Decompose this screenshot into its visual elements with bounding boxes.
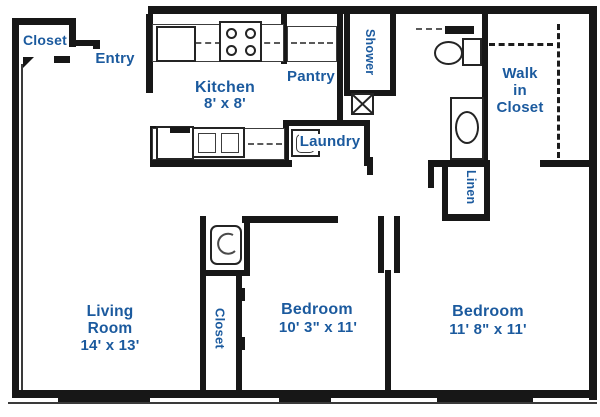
bathroom-mirror <box>445 26 474 34</box>
wall-bedroom-divider <box>385 270 391 393</box>
wall-bathroom-left <box>390 14 396 96</box>
wall-linen-left <box>442 167 448 219</box>
wall-top-outer <box>148 6 597 14</box>
wall-entry-closet-top <box>12 18 76 25</box>
bathroom-sink <box>455 111 479 144</box>
room-label-bedroom-1: Bedroom <box>276 301 358 319</box>
bedroom1-closet-door-mark-1 <box>238 288 245 301</box>
window-bedroom-1 <box>279 390 331 402</box>
vent-chase <box>351 93 374 115</box>
water-heater <box>210 225 242 265</box>
wall-entry-closet-bottom-stub <box>54 56 70 63</box>
refrigerator <box>156 26 196 62</box>
room-label-linen: Linen <box>464 170 478 204</box>
room-dims-bedroom-1: 10' 3" x 11' <box>262 320 374 337</box>
room-dims-bedroom-2: 11' 8" x 11' <box>432 322 544 339</box>
room-dims-kitchen: 8' x 8' <box>178 96 272 113</box>
stove-burner <box>245 28 256 39</box>
wall-utility-right <box>244 216 250 273</box>
wall-pantry-right <box>337 14 343 122</box>
bedroom1-closet-door-mark-2 <box>238 337 245 350</box>
towel-bar <box>416 28 442 30</box>
wall-linen-bottom <box>442 214 490 221</box>
room-label-entry: Entry <box>90 51 140 68</box>
sink-basin-right <box>221 133 239 153</box>
walkin-rod-vertical <box>557 24 560 158</box>
room-label-walk-in-closet: Walk in Closet <box>494 66 546 116</box>
room-dims-living-room: 14' x 13' <box>58 338 162 355</box>
wall-bathroom-bottom <box>428 160 486 167</box>
wall-bedroom-divider-jamb-left <box>378 216 384 273</box>
wall-bedroom1-top <box>242 216 338 223</box>
counter-centerline-bottom <box>248 143 282 145</box>
wall-laundry-top <box>283 120 370 126</box>
room-label-bedroom-2: Bedroom <box>447 303 529 321</box>
sink-basin-left <box>198 133 216 153</box>
stove <box>219 21 262 62</box>
wall-linen-right <box>484 160 490 221</box>
wall-utility-bottom <box>200 270 250 276</box>
dishwasher-handle <box>170 127 190 133</box>
wall-left-inner-line <box>21 64 23 390</box>
wall-bathroom-door-jamb <box>428 167 434 188</box>
window-living-room <box>58 390 150 402</box>
wall-right-outer <box>589 6 597 400</box>
wall-bedroom-divider-jamb-right <box>394 216 400 273</box>
wall-shower-left <box>344 14 350 96</box>
stove-burner <box>226 28 237 39</box>
stove-burner <box>245 45 256 56</box>
walkin-rod-horizontal <box>489 43 553 46</box>
wall-left-outer <box>12 18 19 398</box>
room-label-pantry: Pantry <box>284 69 338 86</box>
stove-burner <box>226 45 237 56</box>
room-label-laundry: Laundry <box>299 134 361 151</box>
floor-plan: Closet Entry Kitchen 8' x 8' Pantry Show… <box>0 0 600 417</box>
pantry-shelf-centerline <box>291 42 333 44</box>
wall-laundry-jamb <box>367 157 373 175</box>
wall-entry-stub-end <box>93 40 100 49</box>
room-label-shower: Shower <box>363 29 377 75</box>
room-label-bedroom1-closet: Closet <box>212 308 227 349</box>
wall-livingroom-right <box>200 216 206 393</box>
pantry-shelves <box>287 26 337 62</box>
toilet-bowl <box>434 41 463 65</box>
room-label-entry-closet: Closet <box>18 33 72 49</box>
wall-kitchen-bottom <box>150 160 292 167</box>
window-bedroom-2 <box>437 390 533 402</box>
room-label-living-room: Living Room <box>80 303 140 338</box>
wall-walkin-bottom-right <box>540 160 595 167</box>
wall-bottom-outer-line <box>8 402 597 404</box>
toilet-tank <box>462 38 482 66</box>
x-mark-icon <box>353 95 372 113</box>
entry-closet-door-swing <box>23 57 34 68</box>
water-heater-coil-icon <box>212 227 240 263</box>
